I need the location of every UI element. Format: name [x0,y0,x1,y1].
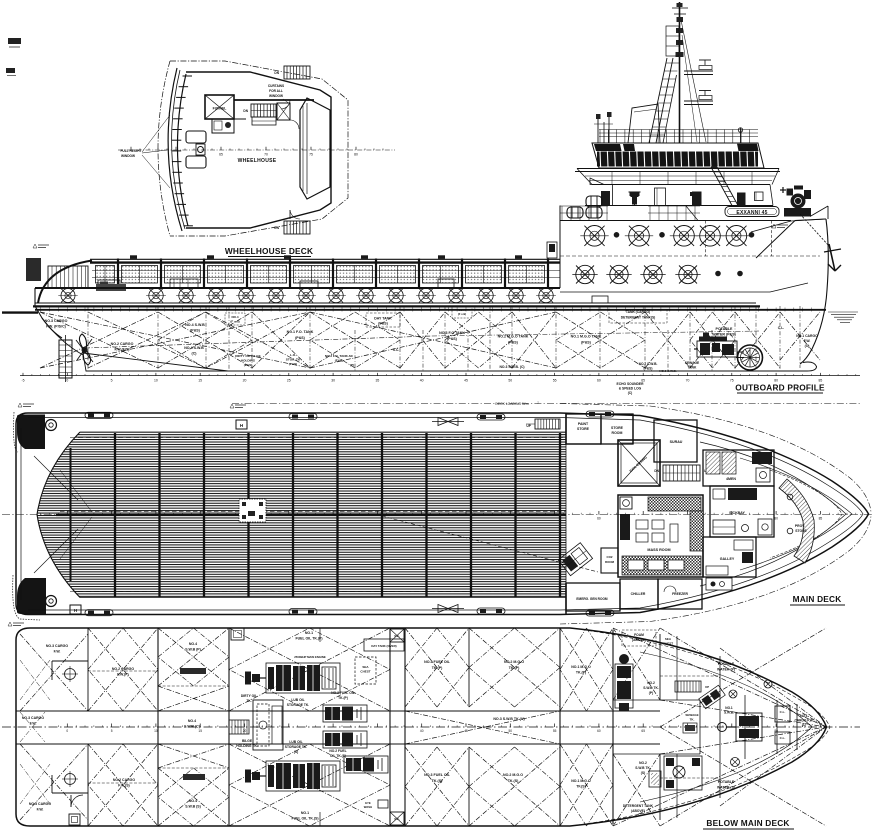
svg-text:20: 20 [243,379,247,383]
svg-text:STORE: STORE [577,427,590,431]
svg-text:(P&S): (P&S) [447,337,458,341]
svg-text:NO.1: NO.1 [800,714,808,718]
svg-text:15: 15 [198,729,202,733]
svg-text:ROOM: ROOM [605,560,615,564]
svg-text:SICKBAY: SICKBAY [729,511,745,515]
svg-text:SEA: SEA [362,665,369,669]
svg-text:(S): (S) [294,750,298,754]
svg-text:NO.4: NO.4 [189,642,197,646]
svg-text:FUEL OIL TK.(S): FUEL OIL TK.(S) [291,817,318,821]
svg-text:0: 0 [66,729,68,733]
svg-text:NO.2 CARGO: NO.2 CARGO [111,342,134,346]
svg-text:POTABLE: POTABLE [716,327,734,331]
svg-text:SEWAGE: SEWAGE [685,361,700,365]
svg-text:HOLDING TK.: HOLDING TK. [236,744,258,748]
svg-text:MASS ROOM: MASS ROOM [647,548,670,552]
svg-text:TK.(S): TK.(S) [432,779,443,783]
svg-text:SEA: SEA [665,637,672,641]
svg-text:S.W.B (C): S.W.B (C) [184,725,200,729]
svg-text:NO.4: NO.4 [188,719,196,723]
svg-text:(ABOVE): (ABOVE) [631,809,645,813]
svg-text:WHEELHOUSE: WHEELHOUSE [238,158,277,164]
svg-text:NO.3 F.O TANK: NO.3 F.O TANK [439,331,465,335]
svg-text:NO.1 M.G.O: NO.1 M.G.O [571,779,591,783]
svg-text:C.L.: C.L. [780,736,786,740]
svg-text:TK.(S): TK.(S) [508,779,519,783]
svg-text:70: 70 [686,379,690,383]
svg-text:NO.3 FUEL OIL: NO.3 FUEL OIL [424,773,450,777]
svg-text:(P&S): (P&S) [378,322,388,326]
svg-text:60: 60 [597,379,601,383]
svg-text:STORAGE TK.: STORAGE TK. [287,703,310,707]
svg-text:MAIN DECK: MAIN DECK [793,594,842,604]
svg-text:WATER (S): WATER (S) [717,786,735,790]
svg-text:S.W.B TK.: S.W.B TK. [643,686,659,690]
svg-text:C.L.: C.L. [780,710,786,714]
svg-text:WATER (P): WATER (P) [717,668,735,672]
svg-text:DETERGENT TANK(S): DETERGENT TANK(S) [621,316,656,320]
svg-text:NO.2 M.G.O TANK: NO.2 M.G.O TANK [498,335,529,339]
svg-text:NO.1: NO.1 [305,631,313,635]
svg-text:60: 60 [597,517,601,521]
svg-text:NO.1 CARGO: NO.1 CARGO [796,334,818,338]
svg-text:POTABLE: POTABLE [718,662,735,666]
svg-text:HOLDING: HOLDING [241,359,256,363]
svg-text:S.C.: S.C. [394,634,400,638]
svg-text:TF.(S): TF.(S) [576,785,586,789]
svg-text:45: 45 [464,379,468,383]
svg-text:75: 75 [309,153,313,157]
svg-text:DN: DN [274,71,279,75]
svg-text:NO.3 CARGO: NO.3 CARGO [46,644,68,648]
svg-text:F.W.(S): F.W.(S) [118,784,129,788]
svg-text:55: 55 [553,729,557,733]
svg-text:(C): (C) [628,391,633,395]
svg-text:DN: DN [654,469,659,473]
svg-text:DN: DN [243,109,248,113]
svg-text:TK.(P): TK.(P) [432,666,443,670]
svg-text:TANK (CARGO): TANK (CARGO) [626,310,650,314]
svg-text:(P): (P) [649,691,653,695]
svg-text:WINDOW: WINDOW [121,154,135,158]
svg-text:NO.2 FUEL: NO.2 FUEL [329,749,346,753]
svg-text:30: 30 [331,379,335,383]
svg-text:ROOM: ROOM [612,431,623,435]
svg-text:50: 50 [508,379,512,383]
svg-text:F.W.: F.W. [37,808,44,812]
svg-text:BILGE: BILGE [242,739,253,743]
svg-text:(S): (S) [641,771,645,775]
svg-text:(P&S): (P&S) [289,362,297,366]
svg-text:SEWAGE: SEWAGE [685,713,698,717]
svg-text:20: 20 [243,729,247,733]
svg-text:S.W.B TK.: S.W.B TK. [635,766,651,770]
svg-text:S.C.: S.C. [394,817,400,821]
svg-text:NO.2 M.G.O: NO.2 M.G.O [504,660,524,664]
svg-text:H: H [240,423,243,428]
svg-text:CURTAINS: CURTAINS [268,84,284,88]
svg-text:85: 85 [819,517,823,521]
svg-text:S.C.: S.C. [393,348,399,352]
svg-text:(F onl): (F onl) [230,320,239,324]
svg-text:TK.: TK. [690,718,695,722]
svg-text:F.W.(P): F.W.(P) [117,673,128,677]
svg-text:NO.2 FUEL OIL: NO.2 FUEL OIL [331,691,355,695]
svg-text:STORE: STORE [795,529,807,533]
svg-text:2500BHP MAIN ENGINE: 2500BHP MAIN ENGINE [294,655,326,659]
svg-text:40: 40 [420,729,424,733]
svg-text:10: 10 [154,379,158,383]
svg-text:NO.2: NO.2 [639,761,647,765]
svg-text:EXXANNI 45: EXXANNI 45 [736,210,767,216]
svg-text:(E&S): (E&S) [244,363,252,367]
svg-text:TK.(P): TK.(P) [509,666,520,670]
svg-text:NO.2 CARGO: NO.2 CARGO [112,667,134,671]
svg-text:(E&S): (E&S) [335,359,343,363]
svg-text:5: 5 [111,379,113,383]
svg-text:(P): (P) [350,363,354,367]
svg-text:NO.4: NO.4 [231,315,238,319]
svg-text:TANK: TANK [688,366,698,370]
svg-text:S.W.B (S): S.W.B (S) [185,805,201,809]
svg-text:FUNNEL: FUNNEL [213,107,227,111]
svg-text:NO.3 CARGO: NO.3 CARGO [45,319,68,323]
svg-text:S.W.B.: S.W.B. [724,711,734,715]
svg-text:(C): (C) [802,723,806,727]
svg-text:25: 25 [287,379,291,383]
svg-text:FUEL OIL TK.(P): FUEL OIL TK.(P) [295,637,322,641]
svg-text:10: 10 [154,729,158,733]
svg-text:CHEST: CHEST [663,642,673,646]
svg-text:TK.(P): TK.(P) [576,671,586,675]
svg-text:STOR. TK: STOR. TK [286,358,301,362]
svg-text:NO.1: NO.1 [301,811,309,815]
svg-text:(P&S): (P&S) [581,341,592,345]
svg-text:NO.4: NO.4 [189,799,197,803]
svg-text:DIRTY OIL BILGE: DIRTY OIL BILGE [235,354,261,358]
svg-text:UP: UP [526,424,531,428]
svg-text:NO.1 M.G.O: NO.1 M.G.O [571,665,591,669]
svg-text:NO.3 CARGO: NO.3 CARGO [22,716,44,720]
svg-text:(ABOVE): (ABOVE) [632,638,646,642]
svg-text:L.O.: L.O. [290,353,296,357]
svg-text:75: 75 [730,379,734,383]
svg-text:POTABLE: POTABLE [718,780,735,784]
svg-text:TK.(P): TK.(P) [338,696,348,700]
svg-text:NO.1 S.W.B.: NO.1 S.W.B. [659,369,676,373]
svg-text:WHEELHOUSE DECK: WHEELHOUSE DECK [225,246,313,256]
svg-text:0: 0 [66,379,68,383]
svg-text:MD H: MD H [459,308,466,312]
svg-text:LUB OIL: LUB OIL [289,740,302,744]
svg-text:35: 35 [376,379,380,383]
svg-text:DECK LOADING 5t/m: DECK LOADING 5t/m [495,402,528,406]
svg-text:OUTBOARD PROFILE: OUTBOARD PROFILE [735,383,825,393]
svg-text:(F onl): (F onl) [458,312,466,316]
svg-text:DN: DN [274,226,279,230]
svg-text:WINDOW: WINDOW [269,94,283,98]
svg-text:& SPEED LOG: & SPEED LOG [619,387,642,391]
svg-text:NO.1 M.G.O TANK: NO.1 M.G.O TANK [571,335,602,339]
svg-text:NO.3 S.W.B. (C): NO.3 S.W.B. (C) [499,365,524,369]
svg-text:GALLEY: GALLEY [720,557,735,561]
svg-text:NO.2 S.W.B.: NO.2 S.W.B. [639,362,658,366]
svg-text:C.L.: C.L. [778,326,784,330]
svg-text:FOAM: FOAM [634,633,644,637]
svg-text:DAY TANK: DAY TANK [374,317,392,321]
svg-text:40: 40 [420,379,424,383]
svg-text:STORAGE TK.: STORAGE TK. [285,745,308,749]
svg-text:TK.: TK. [246,699,251,703]
svg-text:NO.1 F.O. TANK: NO.1 F.O. TANK [287,330,314,334]
svg-text:BELOW MAIN DECK: BELOW MAIN DECK [706,818,789,828]
svg-text:NO.3 S.W.B TK.(U): NO.3 S.W.B TK.(U) [493,717,525,721]
svg-text:LUB OIL: LUB OIL [291,698,304,702]
svg-text:NO.2 CARGO: NO.2 CARGO [113,778,135,782]
svg-text:NO.2 M.G.O: NO.2 M.G.O [503,773,523,777]
svg-text:CARGO F.W.: CARGO F.W. [795,719,814,723]
svg-text:F.W.: F.W. [804,339,811,343]
svg-text:NO.2: NO.2 [647,681,655,685]
svg-text:FOR ALL: FOR ALL [269,89,283,93]
svg-text:(C): (C) [805,344,810,348]
svg-text:15: 15 [198,379,202,383]
svg-text:EMERG. GEN ROOM: EMERG. GEN ROOM [576,597,608,601]
svg-text:OIL TK.(S): OIL TK.(S) [330,754,346,758]
svg-text:(P&S): (P&S) [295,336,306,340]
svg-text:F.W.: F.W. [54,650,61,654]
svg-text:65: 65 [219,153,223,157]
svg-text:NO.4 S.W.B: NO.4 S.W.B [184,346,204,350]
svg-text:(P&S): (P&S) [190,329,201,333]
svg-text:STORE: STORE [611,426,624,430]
svg-text:F.W.(F/S): F.W.(F/S) [115,348,131,352]
svg-text:F.W. (P/S/C): F.W. (P/S/C) [46,325,67,329]
svg-text:CHEST: CHEST [360,670,370,674]
svg-text:PAINT: PAINT [578,422,589,426]
svg-text:50: 50 [509,729,513,733]
svg-text:NO.4 S.W.B: NO.4 S.W.B [185,323,205,327]
svg-text:NO.2 F.O. TANK-SC: NO.2 F.O. TANK-SC [325,354,354,358]
svg-text:PROV.: PROV. [795,524,805,528]
svg-text:5: 5 [111,729,113,733]
svg-text:(P&S): (P&S) [508,341,519,345]
svg-text:H: H [74,608,77,613]
svg-text:FULL HEIGHT: FULL HEIGHT [120,149,141,153]
svg-text:80: 80 [354,153,358,157]
svg-text:60: 60 [597,729,601,733]
svg-text:DIRTY OIL: DIRTY OIL [241,694,257,698]
svg-text:NO.3 CARGO: NO.3 CARGO [29,802,51,806]
svg-text:70: 70 [264,153,268,157]
svg-text:WATER (P&S): WATER (P&S) [712,333,736,337]
svg-text:FREEZER: FREEZER [672,592,688,596]
svg-text:S.W.B (P): S.W.B (P) [185,648,201,652]
svg-text:NO.3 FUEL OIL: NO.3 FUEL OIL [424,660,450,664]
svg-text:CHILLER: CHILLER [631,592,646,596]
svg-text:SURAU: SURAU [670,440,683,444]
svg-text:WASH: WASH [364,805,372,809]
svg-text:55: 55 [553,379,557,383]
svg-text:-5: -5 [21,379,24,383]
svg-text:UP: UP [705,685,709,689]
svg-text:(C): (C) [192,352,198,356]
svg-text:NO.1: NO.1 [725,706,733,710]
svg-text:(P&S): (P&S) [644,367,653,371]
svg-text:4MEN: 4MEN [726,477,736,481]
svg-text:80: 80 [774,517,778,521]
svg-text:DETERGENT TANK: DETERGENT TANK [623,804,654,808]
svg-text:CO2: CO2 [607,555,613,559]
svg-text:DAY TANK (OVER): DAY TANK (OVER) [371,644,396,648]
svg-text:F.W.: F.W. [30,722,37,726]
svg-text:65: 65 [641,729,645,733]
svg-text:ECHO SOUNDER: ECHO SOUNDER [617,382,645,386]
